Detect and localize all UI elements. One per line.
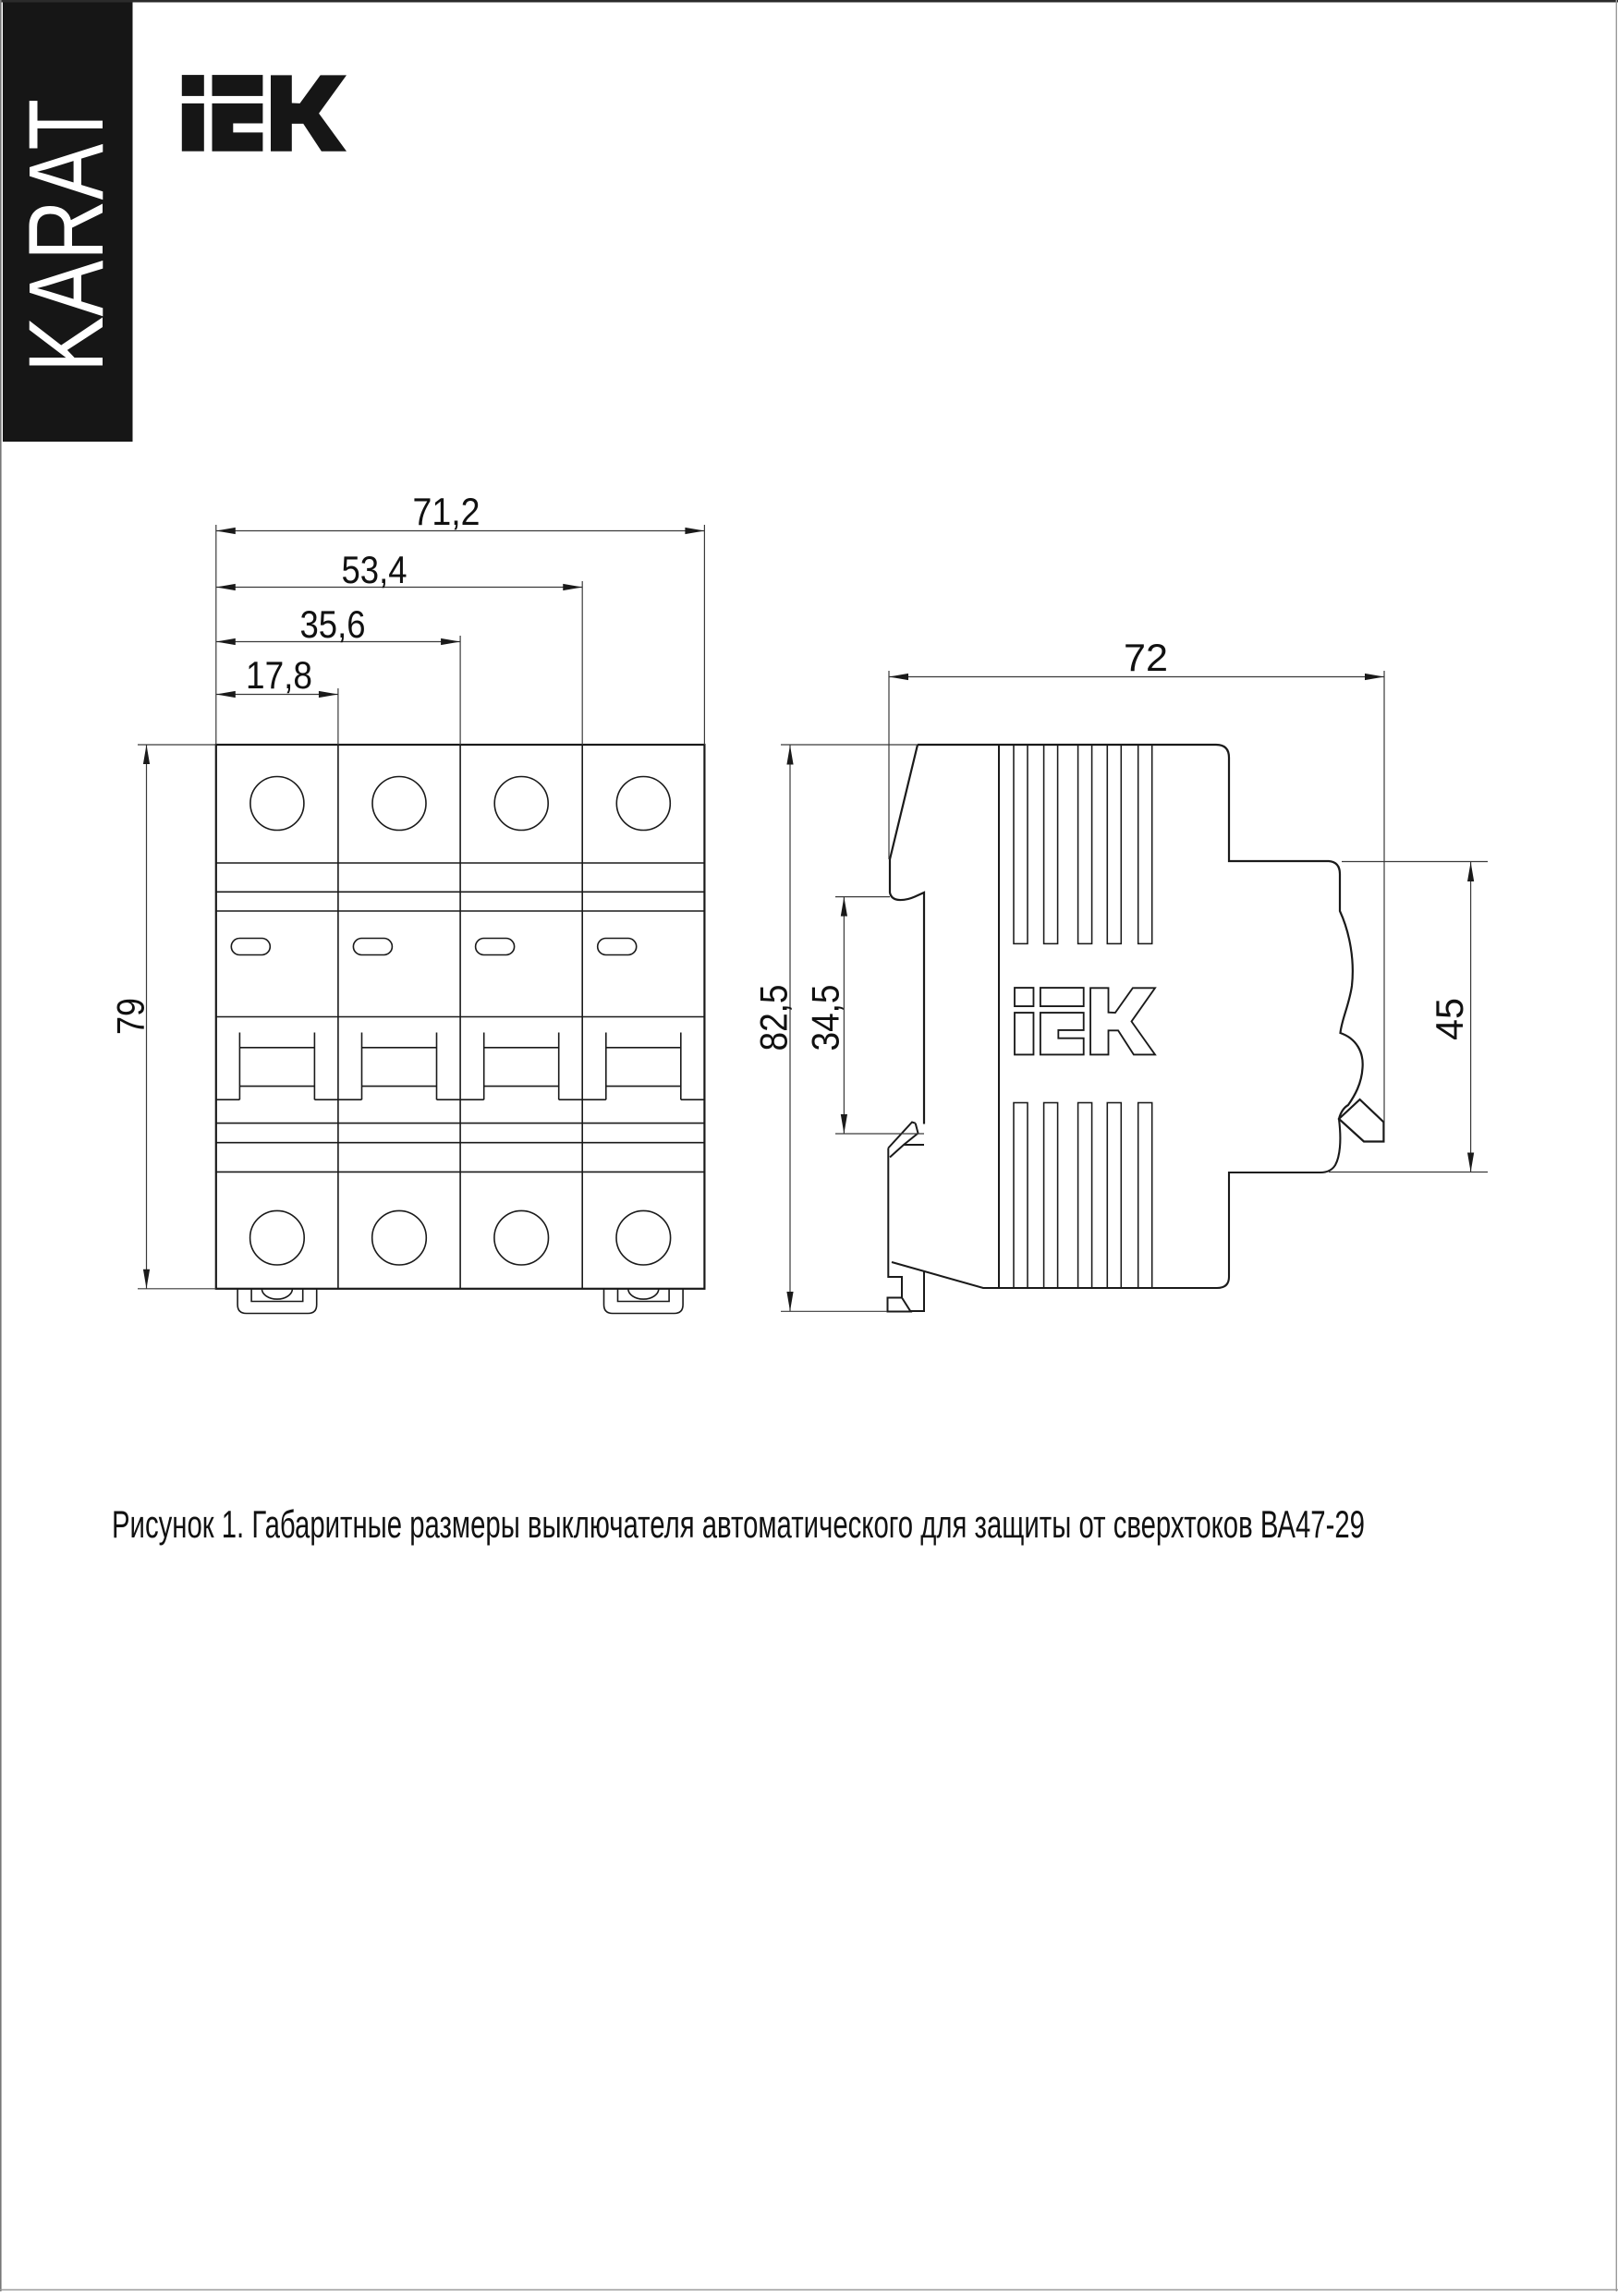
svg-text:KARAT: KARAT [7, 99, 126, 372]
svg-text:17,8: 17,8 [246, 653, 312, 697]
svg-text:53,4: 53,4 [342, 548, 408, 591]
svg-text:71,2: 71,2 [413, 490, 481, 533]
svg-text:35,6: 35,6 [300, 602, 366, 646]
svg-text:34,5: 34,5 [804, 985, 847, 1051]
svg-text:45: 45 [1428, 998, 1471, 1040]
svg-text:Рисунок 1. Габаритные размеры: Рисунок 1. Габаритные размеры выключател… [112, 1502, 1365, 1546]
svg-text:82,5: 82,5 [752, 985, 796, 1051]
svg-text:79: 79 [109, 998, 152, 1035]
svg-text:72: 72 [1124, 636, 1168, 679]
